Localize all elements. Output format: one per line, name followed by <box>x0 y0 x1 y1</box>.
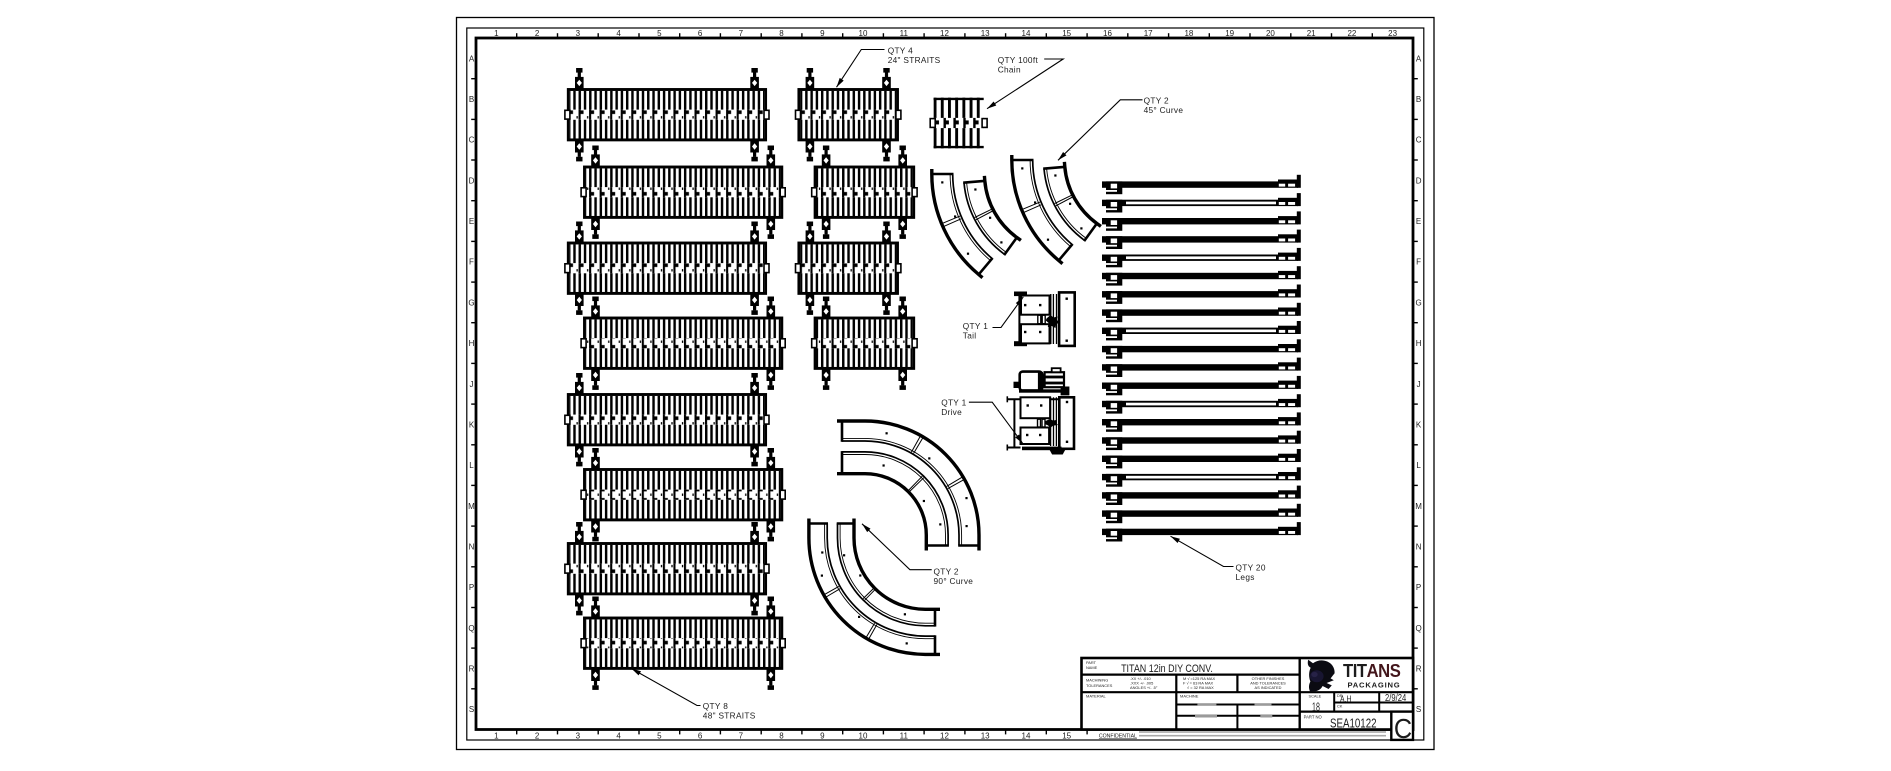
svg-text:QTY 4: QTY 4 <box>888 46 913 56</box>
svg-text:B: B <box>469 95 474 104</box>
svg-text:12: 12 <box>940 29 949 38</box>
svg-text:K: K <box>469 420 475 429</box>
svg-text:17: 17 <box>1144 29 1153 38</box>
svg-text:TITAN 12in DIY CONV.: TITAN 12in DIY CONV. <box>1121 663 1213 675</box>
svg-text:M: M <box>1415 502 1422 511</box>
svg-text:24" STRAITS: 24" STRAITS <box>888 55 941 65</box>
svg-text:CK: CK <box>1337 703 1343 708</box>
svg-text:45° Curve: 45° Curve <box>1144 105 1184 115</box>
svg-text:20: 20 <box>1266 29 1275 38</box>
svg-text:6: 6 <box>698 29 703 38</box>
svg-text:H: H <box>1416 339 1422 348</box>
svg-text:F: F <box>469 258 474 267</box>
svg-text:B: B <box>1416 95 1421 104</box>
svg-text:4: 4 <box>616 732 621 741</box>
svg-text:QTY 20: QTY 20 <box>1236 563 1266 573</box>
svg-text:48" STRAITS: 48" STRAITS <box>703 711 756 721</box>
svg-text:9: 9 <box>820 732 825 741</box>
svg-text:7: 7 <box>739 29 744 38</box>
svg-text:NAME: NAME <box>1086 665 1098 670</box>
svg-text:S: S <box>1416 705 1421 714</box>
svg-text:PART NO: PART NO <box>1304 714 1323 719</box>
svg-text:4: 4 <box>616 29 621 38</box>
svg-text:8: 8 <box>779 732 784 741</box>
svg-text:13: 13 <box>981 732 990 741</box>
svg-text:CONFIDENTIAL: CONFIDENTIAL <box>1099 734 1137 740</box>
svg-text:1: 1 <box>494 29 499 38</box>
svg-text:N: N <box>469 543 475 552</box>
svg-text:18: 18 <box>1312 701 1320 714</box>
svg-text:QTY 2: QTY 2 <box>934 567 959 577</box>
svg-text:21: 21 <box>1307 29 1316 38</box>
svg-text:QTY 1: QTY 1 <box>963 321 988 331</box>
svg-text:5: 5 <box>657 29 662 38</box>
svg-text:8: 8 <box>779 29 784 38</box>
svg-text:9: 9 <box>820 29 825 38</box>
svg-text:TOLERANCES: TOLERANCES <box>1086 683 1113 688</box>
svg-text:18: 18 <box>1184 29 1193 38</box>
svg-text:P: P <box>1416 583 1421 592</box>
svg-text:2/9/24: 2/9/24 <box>1385 692 1406 703</box>
svg-text:C: C <box>1416 136 1422 145</box>
svg-text:Tail: Tail <box>963 331 977 341</box>
svg-text:√ = 32 RA MAX: √ = 32 RA MAX <box>1187 685 1214 690</box>
svg-text:N: N <box>1416 543 1422 552</box>
svg-text:23: 23 <box>1388 29 1397 38</box>
svg-text:3: 3 <box>576 29 581 38</box>
svg-text:AS INDICATED: AS INDICATED <box>1255 685 1282 690</box>
svg-text:10: 10 <box>859 732 868 741</box>
svg-text:2: 2 <box>535 29 540 38</box>
svg-text:14: 14 <box>1022 29 1031 38</box>
svg-text:F: F <box>1416 258 1421 267</box>
svg-text:C: C <box>469 136 475 145</box>
svg-text:Drive: Drive <box>941 407 962 417</box>
svg-text:ANGLES +/- .5°: ANGLES +/- .5° <box>1130 685 1158 690</box>
svg-text:15: 15 <box>1062 29 1071 38</box>
svg-text:5: 5 <box>657 732 662 741</box>
svg-text:3: 3 <box>576 732 581 741</box>
svg-text:Q: Q <box>1415 624 1421 633</box>
svg-text:2: 2 <box>535 732 540 741</box>
svg-text:MACHINE: MACHINE <box>1180 694 1199 699</box>
svg-text:12: 12 <box>940 732 949 741</box>
svg-text:G: G <box>1415 298 1421 307</box>
svg-text:D: D <box>1416 176 1422 185</box>
svg-text:MATERIAL: MATERIAL <box>1086 694 1106 699</box>
svg-text:SEA10122: SEA10122 <box>1330 717 1376 731</box>
svg-text:R: R <box>1416 665 1422 674</box>
svg-text:D: D <box>469 176 475 185</box>
svg-text:6: 6 <box>698 732 703 741</box>
svg-text:15: 15 <box>1062 732 1071 741</box>
svg-text:QTY 1: QTY 1 <box>941 398 966 408</box>
svg-text:QTY 2: QTY 2 <box>1144 96 1169 106</box>
svg-text:11: 11 <box>900 29 909 38</box>
svg-text:Legs: Legs <box>1236 572 1255 582</box>
svg-text:14: 14 <box>1022 732 1031 741</box>
svg-text:L: L <box>469 461 474 470</box>
svg-text:M: M <box>468 502 475 511</box>
svg-text:E: E <box>1416 217 1421 226</box>
svg-text:16: 16 <box>1103 29 1112 38</box>
svg-text:A: A <box>469 54 475 63</box>
svg-text:22: 22 <box>1347 29 1356 38</box>
svg-text:QTY 8: QTY 8 <box>703 701 728 711</box>
svg-text:Chain: Chain <box>998 65 1021 75</box>
svg-text:E: E <box>469 217 474 226</box>
svg-text:PACKAGING: PACKAGING <box>1347 681 1400 690</box>
svg-text:K: K <box>1416 420 1422 429</box>
svg-text:QTY 100ft: QTY 100ft <box>998 55 1039 65</box>
svg-text:7: 7 <box>739 732 744 741</box>
svg-text:10: 10 <box>859 29 868 38</box>
svg-text:J: J <box>470 380 474 389</box>
svg-text:L: L <box>1416 461 1421 470</box>
svg-text:C: C <box>1394 713 1412 744</box>
svg-text:Q: Q <box>468 624 474 633</box>
svg-text:P: P <box>469 583 474 592</box>
svg-text:G: G <box>468 298 474 307</box>
svg-text:MACHINING: MACHINING <box>1086 678 1108 683</box>
svg-text:1: 1 <box>494 732 499 741</box>
svg-text:H: H <box>469 339 475 348</box>
svg-text:13: 13 <box>981 29 990 38</box>
svg-text:S: S <box>469 705 474 714</box>
svg-text:90° Curve: 90° Curve <box>934 576 974 586</box>
svg-text:11: 11 <box>900 732 909 741</box>
svg-text:J: J <box>1417 380 1421 389</box>
svg-text:19: 19 <box>1225 29 1234 38</box>
svg-text:SCALE: SCALE <box>1309 694 1322 699</box>
svg-text:TITANS: TITANS <box>1343 660 1401 681</box>
svg-text:R: R <box>469 665 475 674</box>
svg-text:A: A <box>1416 54 1422 63</box>
